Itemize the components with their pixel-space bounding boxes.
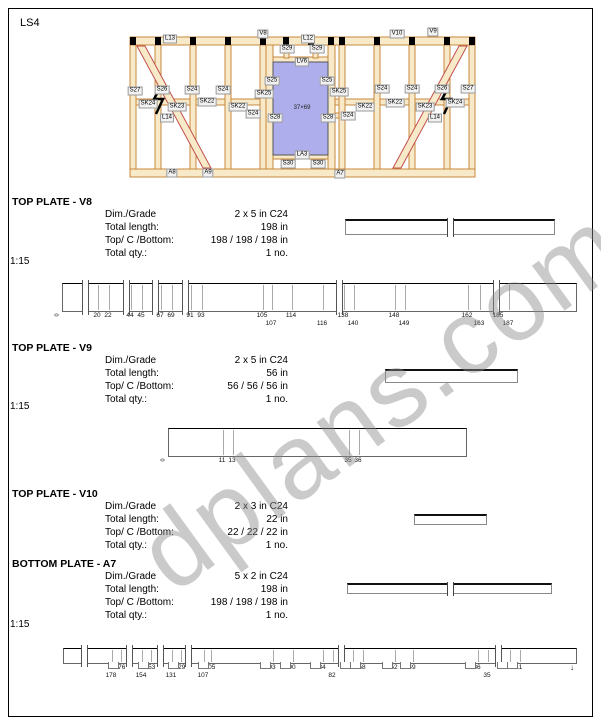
spec-field-value: 5 x 2 in C24	[105, 571, 288, 582]
dimension-number: 138	[338, 312, 349, 319]
stud-position-line	[181, 650, 182, 662]
break-mark	[493, 280, 500, 315]
section-title: TOP PLATE - V9	[12, 342, 302, 355]
stud-position-line	[323, 285, 324, 310]
spec-row: Total qty.:1 no.	[12, 610, 302, 623]
stud-position-line	[333, 650, 334, 662]
stud-notch	[260, 662, 271, 669]
stud-position-line	[109, 285, 110, 310]
spec-field-value: 1 no.	[105, 540, 288, 551]
frame-part-label: S28	[321, 114, 336, 123]
dimensioned-plate-bar	[62, 283, 577, 312]
dimension-number: 116	[317, 320, 327, 327]
frame-part-label: A9	[202, 169, 213, 178]
stud-position-line	[468, 285, 469, 310]
dimension-number: 149	[399, 320, 410, 327]
stud-position-line	[223, 430, 224, 455]
section-top-plate-v10: TOP PLATE - V10 Dim./Grade2 x 3 in C24To…	[12, 488, 302, 553]
break-mark	[185, 645, 192, 667]
frame-part-label: S24	[341, 112, 356, 121]
stud-notch	[507, 662, 518, 669]
spec-row: Top/ C /Bottom:198 / 198 / 198 in	[12, 597, 302, 610]
stud-position-line	[488, 650, 489, 662]
spec-row: Dim./Grade2 x 5 in C24	[12, 209, 302, 222]
frame-part-label: S27	[128, 87, 143, 96]
dimension-number: 140	[348, 320, 359, 327]
sheet-code: LS4	[20, 17, 40, 29]
stud-notch	[382, 662, 393, 669]
scale-label: 1:15	[10, 256, 29, 267]
dimension-number: 22	[104, 312, 111, 319]
plate-preview-bar	[345, 219, 555, 235]
frame-part-label: S24	[185, 86, 200, 95]
frame-part-label: SK22	[229, 103, 248, 112]
frame-part-label: L14	[428, 114, 442, 123]
stud-position-line	[478, 650, 479, 662]
section-bottom-plate-a7: BOTTOM PLATE - A7 Dim./Grade5 x 2 in C24…	[12, 558, 302, 623]
stud-position-line	[172, 285, 173, 310]
frame-part-label: SK25	[255, 90, 274, 99]
spec-row: Top/ C /Bottom:198 / 198 / 198 in	[12, 235, 302, 248]
frame-part-label: S24	[405, 85, 420, 94]
stud-notch	[465, 662, 476, 669]
spec-field-value: 198 / 198 / 198 in	[105, 597, 288, 608]
frame-part-label: A7	[334, 170, 345, 179]
frame-part-label: S26	[435, 85, 450, 94]
plan-sheet: LS4	[0, 0, 601, 724]
frame-part-label: S25	[320, 77, 335, 86]
spec-field-value: 2 x 3 in C24	[105, 501, 288, 512]
stud-position-line	[349, 430, 350, 455]
stud-notch	[168, 662, 179, 669]
dimension-number: 35	[344, 457, 351, 464]
frame-part-label: A8	[166, 169, 177, 178]
stud-position-line	[520, 650, 521, 662]
frame-part-label: SK24	[139, 100, 158, 109]
dimension-number: 187	[503, 320, 514, 327]
stud-position-line	[172, 650, 173, 662]
frame-part-label: S24	[375, 85, 390, 94]
stud-position-line	[142, 285, 143, 310]
stud-position-line	[509, 285, 510, 310]
stud-position-line	[272, 285, 273, 310]
break-mark	[81, 645, 88, 667]
plate-preview-bar	[347, 583, 552, 594]
spec-field-value: 1 no.	[105, 248, 288, 259]
spec-row: Dim./Grade2 x 5 in C24	[12, 355, 302, 368]
spec-row: Dim./Grade2 x 3 in C24	[12, 501, 302, 514]
stud-position-line	[191, 285, 192, 310]
section-title: TOP PLATE - V8	[12, 196, 302, 209]
spec-field-value: 2 x 5 in C24	[105, 355, 288, 366]
frame-part-label: SK24	[446, 99, 465, 108]
break-mark	[447, 582, 454, 596]
dimension-number: 11	[219, 457, 226, 464]
dimension-number: 178	[106, 672, 117, 679]
stud-position-line	[131, 285, 132, 310]
spec-rows: Dim./Grade2 x 5 in C24Total length:56 in…	[12, 355, 302, 407]
stud-notch	[350, 662, 361, 669]
stud-position-line	[359, 430, 360, 455]
spec-rows: Dim./Grade5 x 2 in C24Total length:198 i…	[12, 571, 302, 623]
frame-part-label: SK23	[168, 103, 187, 112]
stud-position-line	[510, 650, 511, 662]
dimension-number: 163	[474, 320, 485, 327]
frame-part-label: L12	[301, 35, 315, 44]
frame-part-label: S27	[461, 85, 476, 94]
spec-field-value: 56 / 56 / 56 in	[105, 381, 288, 392]
dimension-number: 154	[136, 672, 147, 679]
spec-row: Top/ C /Bottom:22 / 22 / 22 in	[12, 527, 302, 540]
break-mark	[123, 280, 130, 315]
frame-part-label: L13	[163, 35, 177, 44]
frame-part-label: V10	[390, 30, 405, 39]
frame-part-label: SK22	[356, 103, 375, 112]
dimension-number: 82	[328, 672, 335, 679]
end-arrow-icon: ↓	[570, 664, 574, 672]
spec-row: Total length:198 in	[12, 584, 302, 597]
dimension-number: 162	[462, 312, 473, 319]
spec-row: Total qty.:1 no.	[12, 394, 302, 407]
spec-field-value: 1 no.	[105, 394, 288, 405]
frame-part-label: S28	[268, 114, 283, 123]
break-mark	[82, 280, 89, 315]
stud-position-line	[202, 285, 203, 310]
spec-row: Dim./Grade5 x 2 in C24	[12, 571, 302, 584]
origin-mark: 0	[55, 313, 61, 316]
dimension-number: 185	[493, 312, 504, 319]
stud-position-line	[204, 650, 205, 662]
stud-position-line	[363, 650, 364, 662]
frame-part-label: V9	[427, 28, 438, 37]
dimension-number: 148	[389, 312, 400, 319]
stud-position-line	[405, 285, 406, 310]
break-mark	[336, 280, 343, 315]
section-title: BOTTOM PLATE - A7	[12, 558, 302, 571]
dimension-number: 45	[137, 312, 144, 319]
scale-label: 1:15	[10, 619, 29, 630]
spec-field-value: 198 in	[105, 222, 288, 233]
break-mark	[447, 218, 454, 237]
dimension-number: 69	[167, 312, 174, 319]
stud-position-line	[395, 285, 396, 310]
frame-part-label: S24	[216, 86, 231, 95]
spec-rows: Dim./Grade2 x 5 in C24Total length:198 i…	[12, 209, 302, 261]
spec-field-value: 2 x 5 in C24	[105, 209, 288, 220]
stud-position-line	[480, 285, 481, 310]
dimension-number: 13	[228, 457, 235, 464]
frame-part-label: S29	[310, 45, 325, 54]
stud-notch	[310, 662, 321, 669]
spec-row: Total length:56 in	[12, 368, 302, 381]
frame-part-label: SK22	[198, 98, 217, 107]
stud-position-line	[344, 285, 345, 310]
frame-part-label: SK22	[386, 99, 405, 108]
origin-mark: 0	[161, 458, 167, 461]
frame-part-label: S25	[265, 77, 280, 86]
frame-part-label: S24	[246, 110, 261, 119]
stud-position-line	[354, 285, 355, 310]
stud-position-line	[293, 650, 294, 662]
stud-position-line	[273, 650, 274, 662]
dimension-number: 107	[266, 320, 277, 327]
stud-notch	[280, 662, 291, 669]
frame-part-label: S29	[280, 45, 295, 54]
spec-field-value: 198 in	[105, 584, 288, 595]
stud-position-line	[151, 650, 152, 662]
stud-position-line	[233, 430, 234, 455]
break-mark	[157, 645, 164, 667]
frame-part-label: LA3	[295, 151, 310, 160]
scale-label: 1:15	[10, 401, 29, 412]
dimension-number: 91	[186, 312, 193, 319]
window-size-label: 37×69	[294, 105, 311, 111]
dimension-number: 35	[483, 672, 490, 679]
spec-row: Total qty.:1 no.	[12, 248, 302, 261]
plate-preview-bar	[385, 369, 518, 383]
frame-part-label: S30	[311, 160, 326, 169]
section-title: TOP PLATE - V10	[12, 488, 302, 501]
stud-position-line	[395, 650, 396, 662]
frame-part-label: S26	[155, 86, 170, 95]
stud-position-line	[112, 650, 113, 662]
dimension-number: 67	[156, 312, 163, 319]
stud-position-line	[211, 650, 212, 662]
dimension-number: 44	[126, 312, 133, 319]
break-mark	[126, 645, 133, 667]
plate-preview-bar	[414, 514, 487, 525]
spec-row: Total length:22 in	[12, 514, 302, 527]
frame-part-label: SK23	[416, 103, 435, 112]
stud-notch	[400, 662, 411, 669]
spec-field-value: 22 / 22 / 22 in	[105, 527, 288, 538]
dimensioned-plate-bar	[168, 428, 467, 457]
stud-position-line	[353, 650, 354, 662]
spec-field-value: 56 in	[105, 368, 288, 379]
dimension-number: 105	[257, 312, 268, 319]
spec-row: Top/ C /Bottom:56 / 56 / 56 in	[12, 381, 302, 394]
dimension-number: 20	[93, 312, 100, 319]
stud-position-line	[161, 285, 162, 310]
spec-rows: Dim./Grade2 x 3 in C24Total length:22 in…	[12, 501, 302, 553]
dimension-number: 131	[166, 672, 177, 679]
frame-part-label: S30	[281, 160, 296, 169]
stud-position-line	[263, 285, 264, 310]
frame-part-label: LV6	[295, 58, 309, 67]
stud-position-line	[413, 650, 414, 662]
frame-part-label: L14	[160, 114, 174, 123]
spec-field-value: 1 no.	[105, 610, 288, 621]
spec-row: Total qty.:1 no.	[12, 540, 302, 553]
stud-position-line	[323, 650, 324, 662]
stud-notch	[108, 662, 119, 669]
section-top-plate-v8: TOP PLATE - V8 Dim./Grade2 x 5 in C24Tot…	[12, 196, 302, 261]
frame-part-label: SK25	[330, 88, 349, 97]
break-mark	[182, 280, 189, 315]
dimension-number: 107	[198, 672, 209, 679]
break-mark	[152, 280, 159, 315]
spec-field-value: 198 / 198 / 198 in	[105, 235, 288, 246]
stud-notch	[198, 662, 209, 669]
stud-notch	[138, 662, 149, 669]
stud-position-line	[292, 285, 293, 310]
stud-position-line	[121, 650, 122, 662]
frame-part-label: V8	[257, 30, 268, 39]
spec-row: Total length:198 in	[12, 222, 302, 235]
stud-position-line	[142, 650, 143, 662]
stud-position-line	[98, 285, 99, 310]
dimension-number: 36	[354, 457, 361, 464]
section-top-plate-v9: TOP PLATE - V9 Dim./Grade2 x 5 in C24Tot…	[12, 342, 302, 407]
spec-field-value: 22 in	[105, 514, 288, 525]
dimension-number: 93	[197, 312, 204, 319]
dimension-number: 114	[286, 312, 296, 319]
